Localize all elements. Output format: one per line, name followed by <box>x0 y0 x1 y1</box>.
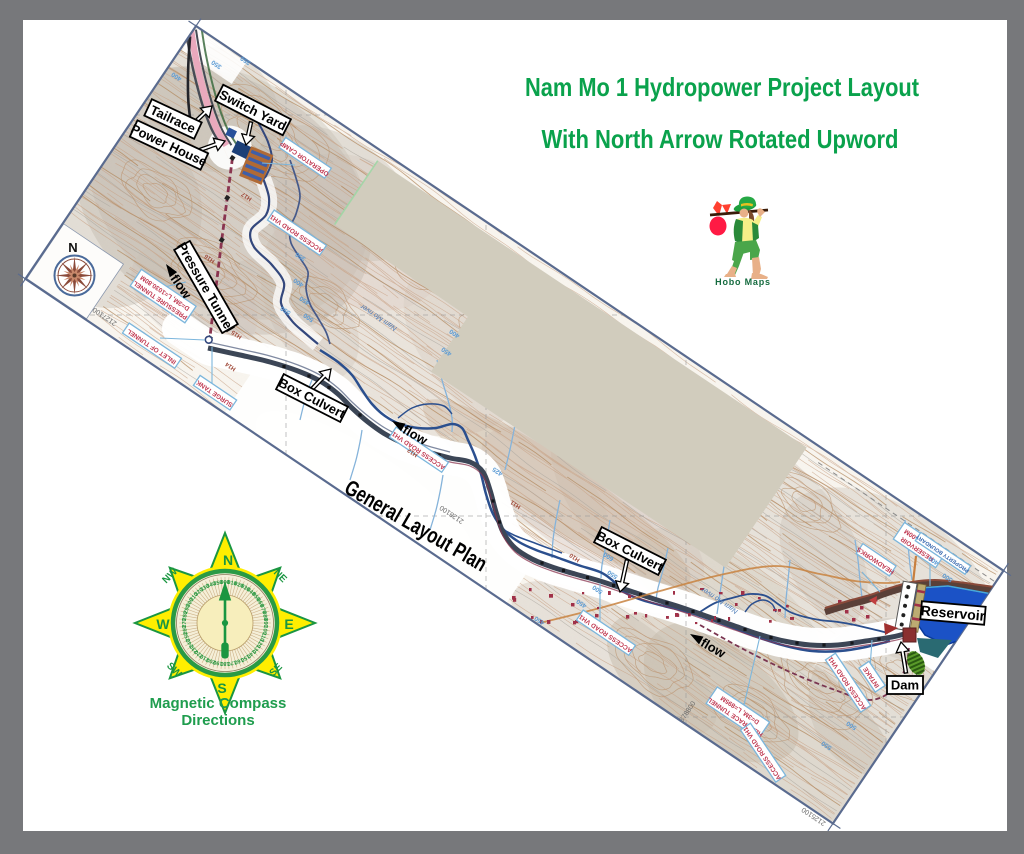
svg-text:S: S <box>217 680 226 696</box>
svg-text:W: W <box>156 616 170 632</box>
svg-text:N: N <box>223 552 233 568</box>
svg-text:Hobo Maps: Hobo Maps <box>715 277 771 287</box>
svg-text:With North Arrow Rotated Upwor: With North Arrow Rotated Upword <box>542 124 899 154</box>
svg-text:Nam Mo 1 Hydropower Project La: Nam Mo 1 Hydropower Project Layout <box>525 72 919 102</box>
svg-text:Magnetic Compass: Magnetic Compass <box>150 695 287 712</box>
svg-text:Dam: Dam <box>891 678 919 693</box>
svg-text:N: N <box>68 240 77 255</box>
svg-text:E: E <box>284 616 293 632</box>
svg-text:Directions: Directions <box>181 712 254 729</box>
